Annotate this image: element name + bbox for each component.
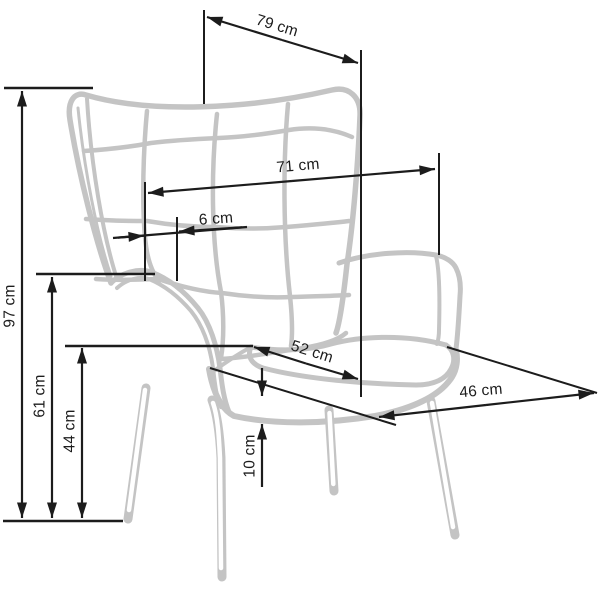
chair-drawing (69, 89, 460, 577)
dim-label-46cm: 46 cm (459, 381, 504, 402)
chair-legs (128, 388, 455, 577)
dim-label-6cm: 6 cm (198, 209, 233, 228)
chair-left-armrest (111, 270, 251, 412)
dim-label-79cm: 79 cm (254, 12, 300, 41)
dim-label-10cm: 10 cm (242, 434, 259, 477)
dim-label-71cm: 71 cm (276, 156, 321, 177)
diagram-canvas: 79 cm 97 cm 71 cm 6 cm 61 cm 44 cm 52 cm… (0, 0, 600, 600)
dim-label-61cm: 61 cm (32, 374, 49, 417)
chair-right-armrest (339, 253, 460, 349)
armchair-dimension-diagram: 79 cm 97 cm 71 cm 6 cm 61 cm 44 cm 52 cm… (0, 0, 600, 600)
dim-label-97cm: 97 cm (2, 284, 19, 327)
dim-label-44cm: 44 cm (62, 409, 79, 452)
